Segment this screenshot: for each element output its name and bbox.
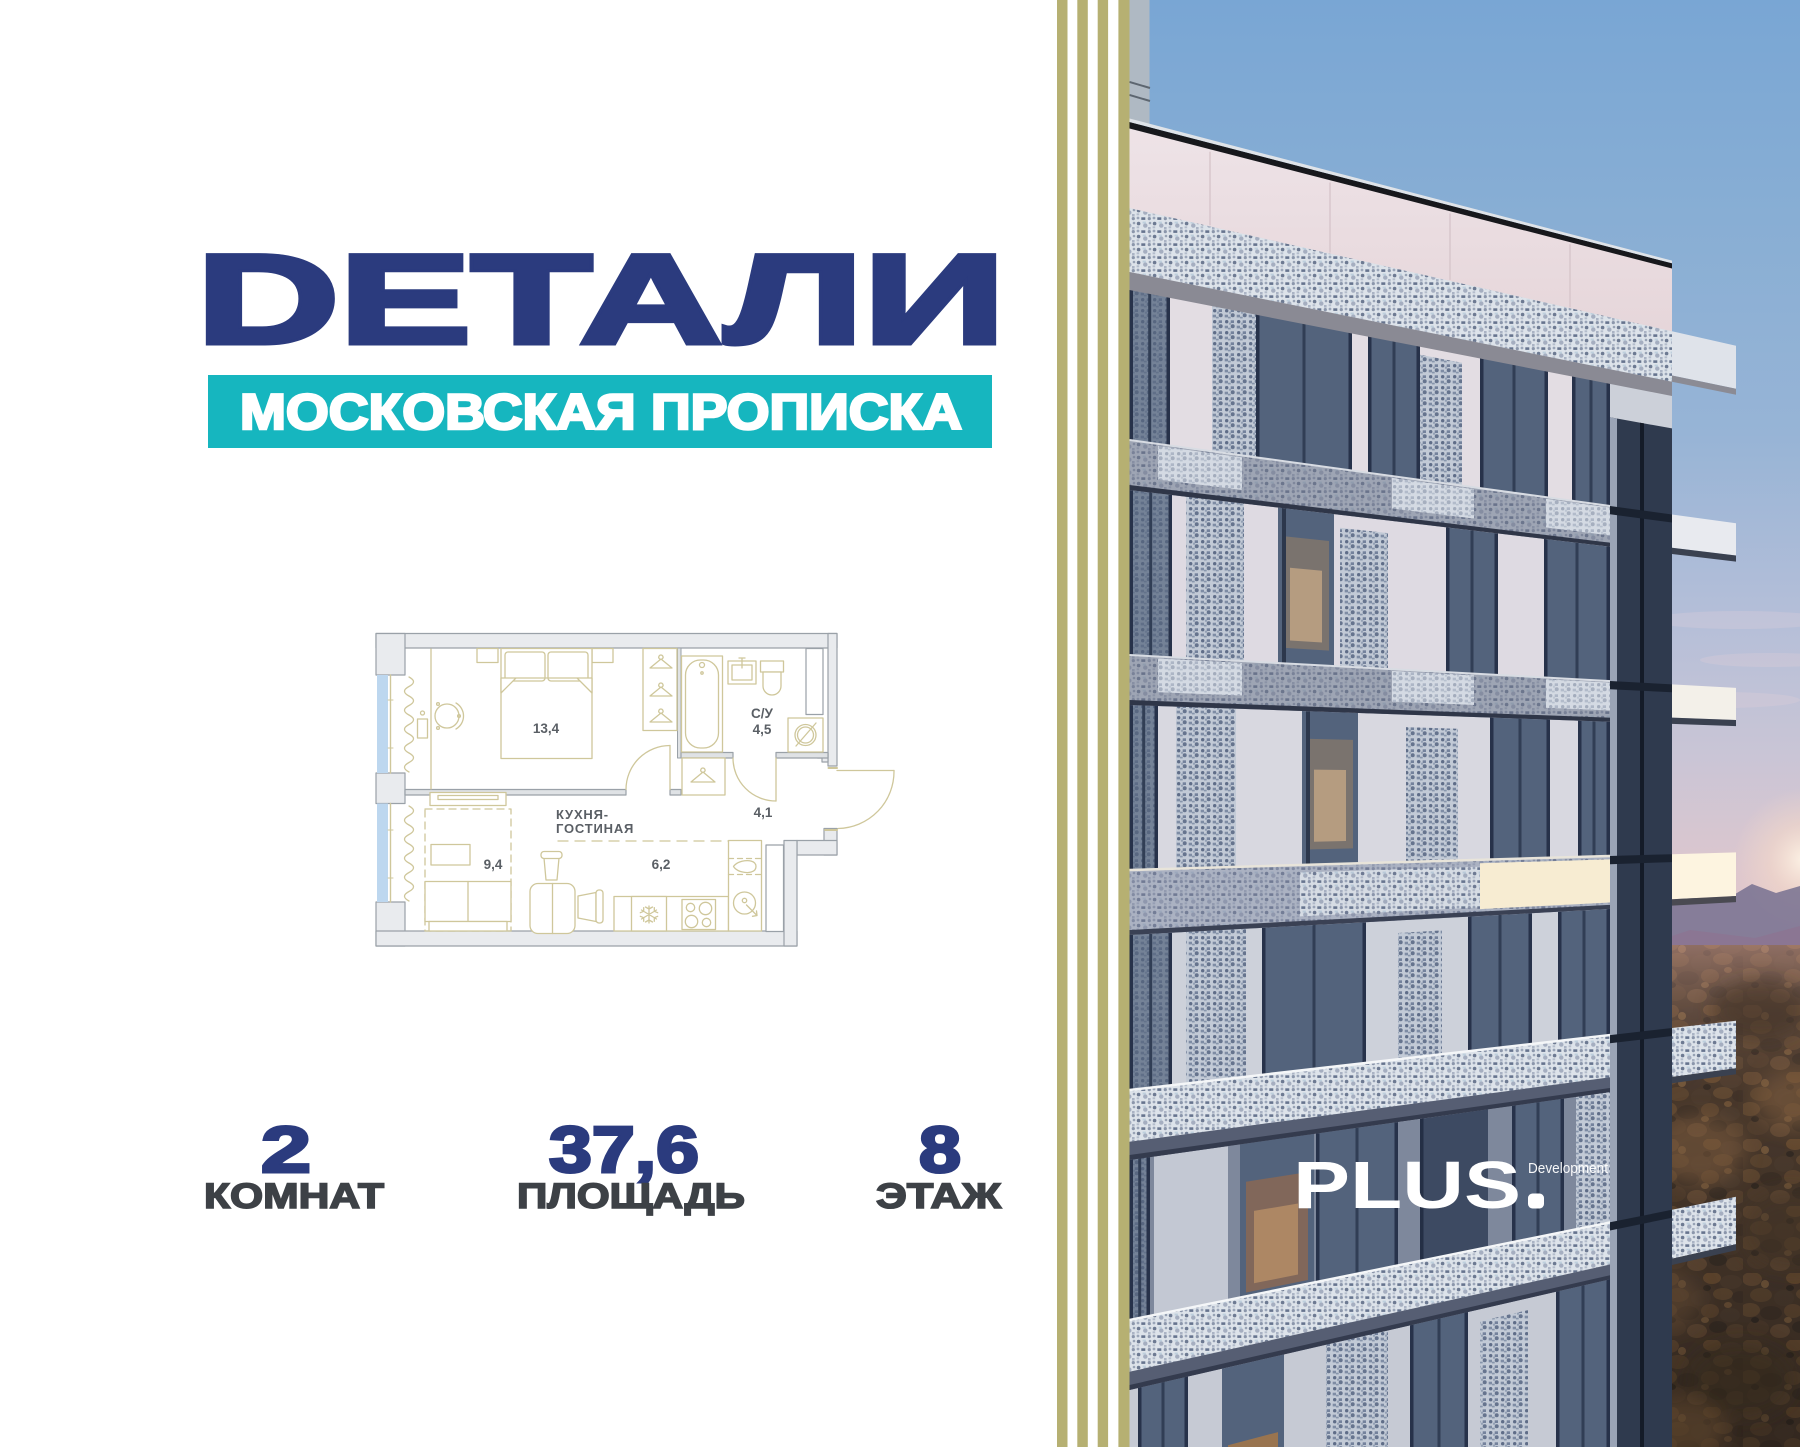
svg-text:ЭТАЖ: ЭТАЖ — [876, 1177, 1001, 1216]
svg-text:13,4: 13,4 — [533, 721, 560, 736]
svg-text:DЕТАЛИ: DЕТАЛИ — [197, 228, 1006, 370]
svg-text:Development: Development — [1528, 1160, 1609, 1177]
svg-text:МОСКОВСКАЯ ПРОПИСКА: МОСКОВСКАЯ ПРОПИСКА — [240, 384, 962, 440]
svg-text:8: 8 — [919, 1113, 961, 1186]
svg-text:6,2: 6,2 — [652, 857, 671, 872]
svg-text:4,1: 4,1 — [754, 805, 773, 820]
svg-text:ГОСТИНАЯ: ГОСТИНАЯ — [556, 821, 634, 836]
svg-text:37,6: 37,6 — [549, 1113, 699, 1186]
svg-text:9,4: 9,4 — [484, 857, 503, 872]
svg-text:КУХНЯ-: КУХНЯ- — [556, 807, 609, 822]
svg-text:PLUS: PLUS — [1293, 1148, 1521, 1223]
svg-text:ПЛОЩАДЬ: ПЛОЩАДЬ — [517, 1177, 745, 1216]
svg-text:КОМНАТ: КОМНАТ — [204, 1177, 384, 1216]
svg-text:С/У: С/У — [751, 706, 774, 721]
svg-text:2: 2 — [261, 1113, 311, 1186]
svg-text:4,5: 4,5 — [753, 722, 772, 737]
